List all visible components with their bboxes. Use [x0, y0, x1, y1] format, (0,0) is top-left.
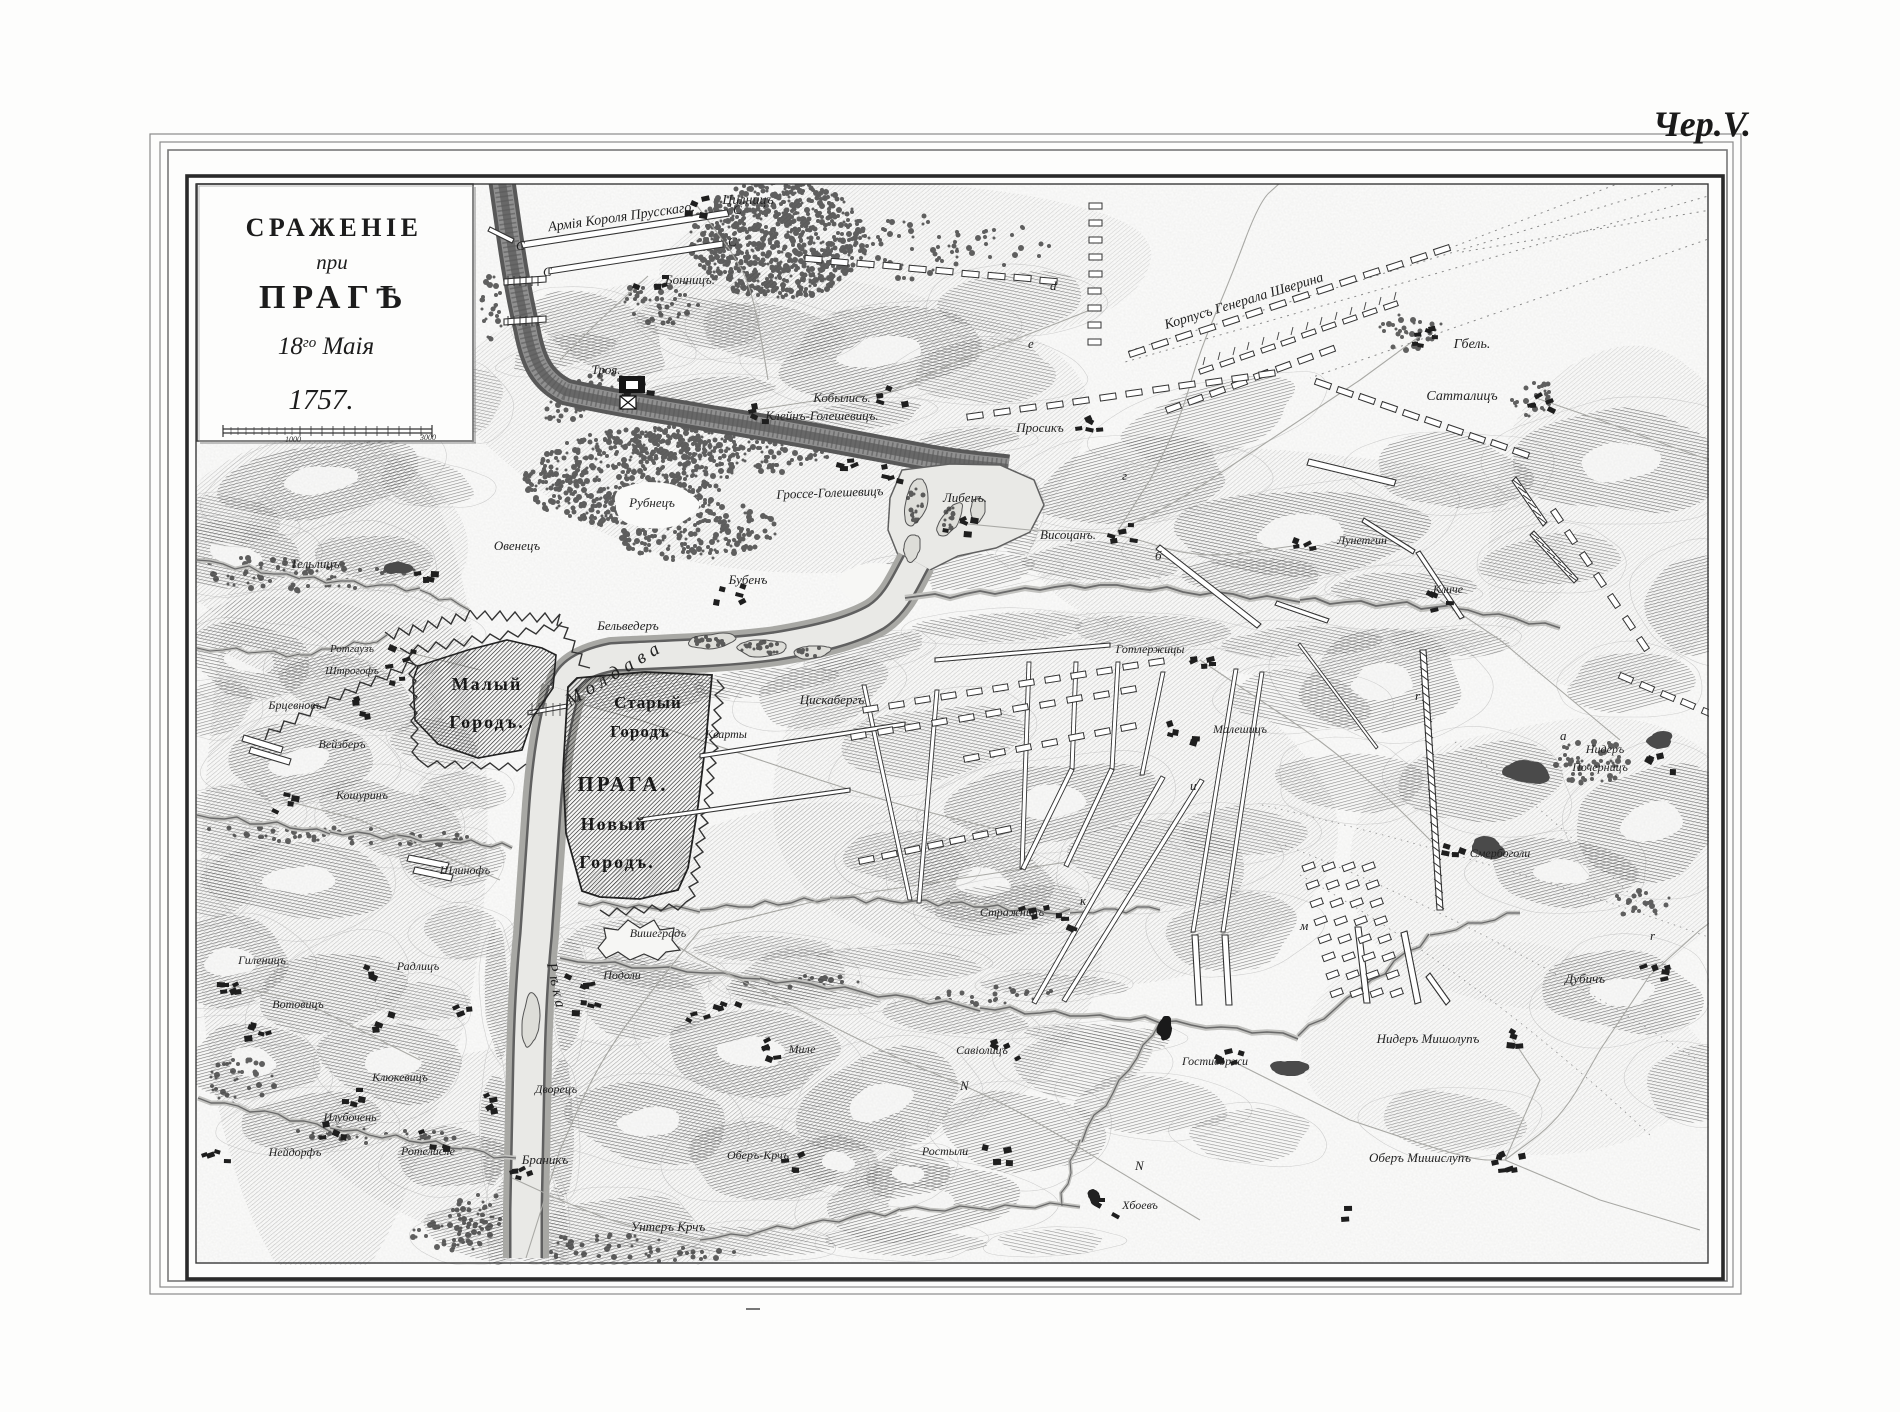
- svg-text:Кобылисъ.: Кобылисъ.: [812, 390, 871, 405]
- svg-text:Малый: Малый: [452, 674, 523, 694]
- svg-text:C: C: [543, 264, 552, 279]
- svg-text:Клюкевицъ: Клюкевицъ: [371, 1070, 428, 1084]
- svg-text:Дубичъ: Дубичъ: [1563, 971, 1605, 986]
- svg-text:Рубнецъ: Рубнецъ: [628, 495, 675, 510]
- svg-text:Нейдорфъ: Нейдорфъ: [268, 1145, 322, 1159]
- svg-text:Лунетгин: Лунетгин: [1336, 533, 1387, 547]
- svg-text:Кличе: Кличе: [1432, 582, 1464, 596]
- svg-text:Нидеръ: Нидеръ: [1585, 742, 1624, 756]
- svg-text:Подоли: Подоли: [602, 968, 641, 982]
- svg-text:Бонницъ.: Бонницъ.: [664, 272, 715, 287]
- svg-text:Радлицъ: Радлицъ: [396, 959, 439, 973]
- svg-text:Бельведеръ: Бельведеръ: [596, 618, 659, 633]
- svg-text:Городъ: Городъ: [610, 722, 670, 741]
- svg-text:Городъ.: Городъ.: [449, 712, 524, 732]
- svg-text:Кварты: Кварты: [704, 727, 747, 741]
- svg-text:при: при: [316, 250, 348, 274]
- svg-text:Бубенъ: Бубенъ: [728, 572, 768, 587]
- svg-text:а: а: [1560, 728, 1567, 743]
- svg-text:Гбель.: Гбель.: [1453, 337, 1491, 352]
- svg-text:Цилницъ: Цилницъ: [721, 193, 773, 208]
- svg-text:Цискабергъ: Цискабергъ: [799, 692, 865, 707]
- svg-text:Миле: Миле: [788, 1042, 817, 1056]
- svg-text:C: C: [516, 238, 525, 253]
- svg-text:Троя.: Троя.: [591, 362, 620, 377]
- svg-text:Илубочень: Илубочень: [322, 1110, 377, 1124]
- svg-text:к: к: [1080, 893, 1087, 908]
- svg-text:Нидеръ Мишолупъ: Нидеръ Мишолупъ: [1376, 1031, 1480, 1046]
- svg-text:Стражницъ: Стражницъ: [980, 905, 1044, 919]
- svg-text:ПРАГА.: ПРАГА.: [577, 772, 668, 796]
- svg-text:N: N: [959, 1078, 970, 1093]
- svg-text:Кошуринъ: Кошуринъ: [335, 788, 388, 802]
- svg-text:Ротелисле: Ротелисле: [400, 1144, 456, 1158]
- svg-text:и: и: [1190, 778, 1197, 793]
- svg-text:Савіолицъ: Савіолицъ: [956, 1043, 1008, 1057]
- svg-text:б: б: [1155, 548, 1162, 563]
- svg-text:Готлержицы: Готлержицы: [1115, 642, 1185, 656]
- svg-text:Штрогофъ: Штрогофъ: [324, 665, 379, 677]
- svg-text:Ротгаузъ: Ротгаузъ: [329, 643, 374, 655]
- svg-text:г: г: [1122, 468, 1127, 483]
- svg-text:Смербоголи: Смербоголи: [1470, 846, 1530, 860]
- svg-text:СРАЖЕНІЕ: СРАЖЕНІЕ: [246, 213, 423, 242]
- svg-text:Овенецъ: Овенецъ: [494, 538, 541, 553]
- svg-text:Оберъ Мишислупъ: Оберъ Мишислупъ: [1369, 1150, 1471, 1165]
- svg-text:Висоцанъ.: Висоцанъ.: [1040, 527, 1096, 542]
- svg-text:ПРАГѢ: ПРАГѢ: [259, 279, 409, 316]
- svg-text:Ростыли: Ростыли: [921, 1144, 968, 1158]
- svg-text:N: N: [1134, 1158, 1145, 1173]
- svg-text:Малешицъ: Малешицъ: [1212, 722, 1267, 736]
- svg-text:3000: 3000: [419, 433, 436, 442]
- svg-text:C: C: [733, 202, 742, 217]
- svg-text:Старый: Старый: [614, 693, 682, 712]
- svg-text:d: d: [1050, 278, 1057, 293]
- svg-text:Сатталицъ: Сатталицъ: [1426, 389, 1497, 404]
- svg-text:Гиленицъ: Гиленицъ: [237, 953, 286, 967]
- svg-text:Тельлицъ: Тельлицъ: [290, 556, 339, 571]
- svg-text:C: C: [728, 234, 737, 249]
- svg-text:Городъ.: Городъ.: [579, 852, 654, 872]
- svg-text:e: e: [1028, 336, 1034, 351]
- svg-text:Хбоевъ: Хбоевъ: [1121, 1198, 1158, 1212]
- svg-text:м: м: [1299, 918, 1308, 933]
- svg-text:Оберъ-Крчъ: Оберъ-Крчъ: [727, 1148, 789, 1162]
- svg-text:1757.: 1757.: [288, 384, 353, 416]
- svg-text:Чер.V.: Чер.V.: [1653, 104, 1751, 144]
- svg-text:Шлинофъ: Шлинофъ: [439, 863, 490, 877]
- svg-text:Гостиворжи: Гостиворжи: [1181, 1054, 1248, 1068]
- svg-text:Клейнъ-Голешевицъ.: Клейнъ-Голешевицъ.: [764, 408, 878, 423]
- svg-text:Новый: Новый: [581, 814, 648, 834]
- svg-text:Почерницъ: Почерницъ: [1571, 760, 1628, 774]
- svg-text:Вейзберъ: Вейзберъ: [319, 737, 366, 751]
- svg-text:Просикъ: Просикъ: [1015, 420, 1064, 435]
- svg-text:Либенъ.: Либенъ.: [942, 490, 987, 505]
- svg-text:Унтеръ Крчъ: Унтеръ Крчъ: [631, 1219, 706, 1234]
- svg-text:Вотовицъ: Вотовицъ: [272, 997, 323, 1011]
- svg-text:Вишеградъ: Вишеградъ: [630, 926, 687, 940]
- svg-text:Брцевновъ: Брцевновъ: [267, 698, 321, 712]
- svg-text:Браникъ: Браникъ: [521, 1152, 569, 1167]
- svg-text:Дворецъ: Дворецъ: [534, 1082, 577, 1096]
- svg-text:18го Маія: 18го Маія: [278, 333, 374, 360]
- svg-text:1000: 1000: [285, 435, 301, 444]
